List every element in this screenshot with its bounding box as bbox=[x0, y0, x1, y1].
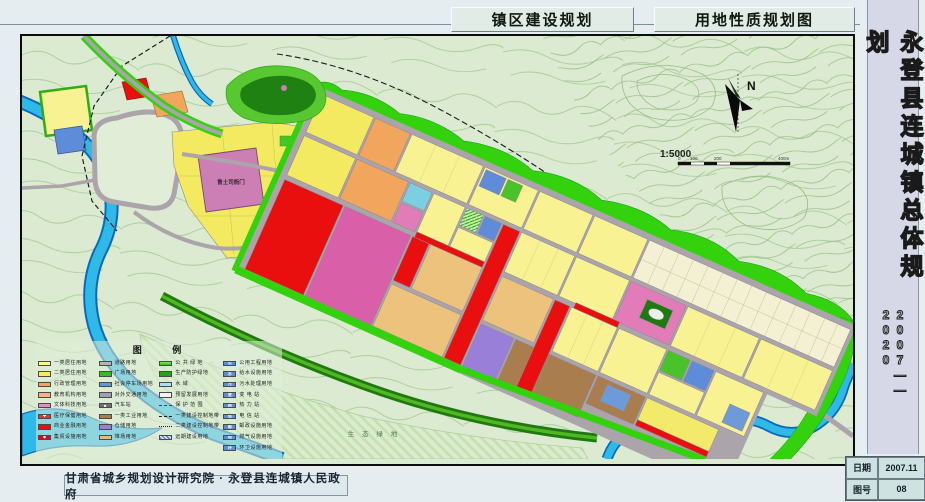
legend-item: 变变 电 站 bbox=[223, 390, 280, 401]
legend-label: 教育机构用地 bbox=[54, 393, 87, 398]
legend-item: 热热 力 站 bbox=[223, 400, 280, 411]
legend-item: 一类建设控制地带 bbox=[159, 411, 219, 422]
date-label: 日期 bbox=[846, 457, 878, 479]
legend-label: 文体科技用地 bbox=[54, 403, 87, 408]
legend-item: 保 护 范 围 bbox=[159, 400, 219, 411]
legend-item: 远期建设用地 bbox=[159, 432, 219, 443]
legend-item: 环环卫设施用地 bbox=[223, 443, 280, 454]
legend-label: 二类居住用地 bbox=[54, 371, 87, 376]
legend-label: 燃气设施用地 bbox=[239, 435, 272, 440]
legend-item: ✚医疗保健用地 bbox=[38, 411, 95, 422]
legend-item: 邮邮政设施用地 bbox=[223, 422, 280, 433]
svg-text:100: 100 bbox=[690, 156, 698, 161]
legend-label: 公用工程用地 bbox=[239, 361, 272, 366]
legend-item: 二类居住用地 bbox=[38, 369, 95, 380]
title-block-table: 日期 2007.11 图号 08 bbox=[845, 456, 925, 501]
forest-hill bbox=[226, 66, 326, 124]
legend-swatch bbox=[159, 416, 172, 417]
legend-item: 对外交通用地 bbox=[99, 390, 156, 401]
legend-item: 道路用地 bbox=[99, 358, 156, 369]
legend-label: 道路用地 bbox=[115, 361, 137, 366]
legend-item: 仓储用地 bbox=[99, 422, 156, 433]
svg-text:400m: 400m bbox=[778, 156, 790, 161]
legend-item: 教育机构用地 bbox=[38, 390, 95, 401]
legend-label: 行政管理用地 bbox=[54, 382, 87, 387]
legend-swatch bbox=[99, 435, 112, 441]
sheet-number-value: 08 bbox=[878, 479, 925, 501]
legend-label: 电 信 站 bbox=[239, 414, 259, 419]
legend-label: 邮政设施用地 bbox=[239, 424, 272, 429]
legend-columns: 一类居住用地二类居住用地行政管理用地教育机构用地文体科技用地✚医疗保健用地商业金… bbox=[38, 358, 280, 453]
legend-swatch bbox=[38, 392, 51, 398]
legend-swatch bbox=[38, 403, 51, 409]
legend-label: 一类居住用地 bbox=[54, 361, 87, 366]
legend-label: 社会停车场用地 bbox=[115, 382, 154, 387]
legend-label: 污水处理用地 bbox=[239, 382, 272, 387]
legend-swatch: 信 bbox=[223, 414, 236, 420]
legend-swatch bbox=[99, 392, 112, 398]
legend-item: 水给水设施用地 bbox=[223, 369, 280, 380]
legend-item: 二类建设控制地带 bbox=[159, 422, 219, 433]
legend-item: 行政管理用地 bbox=[38, 379, 95, 390]
legend-item: 一类居住用地 bbox=[38, 358, 95, 369]
legend-item: 污污水处理用地 bbox=[223, 379, 280, 390]
legend-swatch: ✚ bbox=[38, 414, 51, 420]
legend-swatch bbox=[159, 405, 172, 406]
legend-swatch: 燃 bbox=[223, 435, 236, 441]
legend-item: 文体科技用地 bbox=[38, 400, 95, 411]
legend-label: 广场用地 bbox=[115, 371, 137, 376]
legend-label: 变 电 站 bbox=[239, 393, 259, 398]
legend-item: 广场用地 bbox=[99, 369, 156, 380]
legend-label: 对外交通用地 bbox=[115, 393, 148, 398]
legend-swatch bbox=[38, 361, 51, 367]
title-panel: 永登县连城镇总体规划 2007——2020 bbox=[867, 0, 919, 454]
legend-swatch bbox=[159, 361, 172, 367]
legend-label: 一类工业用地 bbox=[115, 414, 148, 419]
legend-swatch bbox=[99, 382, 112, 388]
legend-item: 信电 信 站 bbox=[223, 411, 280, 422]
historic-site-label: 鲁土司衙门 bbox=[217, 178, 245, 186]
map-area: 鲁土司衙门 生 态 绿 地 N 1:5000 0 100 200 400m 图 … bbox=[20, 34, 855, 466]
legend-label: 水 域 bbox=[175, 382, 188, 387]
legend-label: 医疗保健用地 bbox=[54, 414, 87, 419]
legend-swatch: 邮 bbox=[223, 424, 236, 430]
svg-text:1:5000: 1:5000 bbox=[660, 149, 692, 160]
legend-label: 仓储用地 bbox=[115, 424, 137, 429]
legend-item: ◆集贸设施用地 bbox=[38, 432, 95, 443]
plan-sheet: { "header": { "title_left": "镇区建设规划", "t… bbox=[0, 0, 925, 500]
title-sidebar: 永登县连城镇总体规划 2007——2020 bbox=[860, 0, 925, 500]
sheet-number-label: 图号 bbox=[846, 479, 878, 501]
legend-swatch: 污 bbox=[223, 382, 236, 388]
legend-swatch: 热 bbox=[223, 403, 236, 409]
legend-title: 图 例 bbox=[48, 343, 280, 356]
header-title-right: 用地性质规划图 bbox=[654, 7, 855, 32]
legend-item: 商业金融用地 bbox=[38, 422, 95, 433]
legend-swatch bbox=[159, 371, 172, 377]
legend-item: 堆场用地 bbox=[99, 432, 156, 443]
legend-label: 二类建设控制地带 bbox=[175, 424, 219, 429]
header-title-left: 镇区建设规划 bbox=[451, 7, 634, 32]
legend-label: 堆场用地 bbox=[115, 435, 137, 440]
eco-green-label: 生 态 绿 地 bbox=[348, 429, 400, 438]
legend-swatch bbox=[38, 382, 51, 388]
legend-item: 一类工业用地 bbox=[99, 411, 156, 422]
legend-swatch: 公 bbox=[223, 361, 236, 367]
legend-label: 集贸设施用地 bbox=[54, 435, 87, 440]
legend-label: 给水设施用地 bbox=[239, 371, 272, 376]
legend-swatch bbox=[38, 424, 51, 430]
legend-swatch: ◆ bbox=[38, 435, 51, 441]
legend-label: 保 护 范 围 bbox=[175, 403, 203, 408]
legend-swatch bbox=[99, 371, 112, 377]
svg-text:200: 200 bbox=[714, 156, 722, 161]
legend-item: 公公用工程用地 bbox=[223, 358, 280, 369]
legend-item: 公 共 绿 地 bbox=[159, 358, 219, 369]
legend-item: 燃燃气设施用地 bbox=[223, 432, 280, 443]
legend-item: ■汽车站 bbox=[99, 400, 156, 411]
legend-item: 社会停车场用地 bbox=[99, 379, 156, 390]
legend-swatch bbox=[159, 426, 172, 427]
legend-label: 汽车站 bbox=[115, 403, 132, 408]
legend-swatch bbox=[99, 424, 112, 430]
legend-swatch bbox=[99, 414, 112, 420]
svg-text:N: N bbox=[747, 79, 756, 93]
date-value: 2007.11 bbox=[878, 457, 925, 479]
legend-label: 环卫设施用地 bbox=[239, 446, 272, 451]
sheet-title: 永登县连城镇总体规划 bbox=[859, 30, 925, 302]
legend-item: 生产防护绿地 bbox=[159, 369, 219, 380]
credit-box: 甘肃省城乡规划设计研究院 · 永登县连城镇人民政府 bbox=[64, 475, 348, 496]
legend-item: 预留发展用地 bbox=[159, 390, 219, 401]
plan-period: 2007——2020 bbox=[879, 308, 907, 454]
legend-swatch: 变 bbox=[223, 392, 236, 398]
legend-item: 水 域 bbox=[159, 379, 219, 390]
legend-swatch bbox=[99, 361, 112, 367]
legend-swatch: 环 bbox=[223, 445, 236, 451]
legend-label: 一类建设控制地带 bbox=[175, 414, 219, 419]
legend-label: 商业金融用地 bbox=[54, 424, 87, 429]
legend-label: 生产防护绿地 bbox=[175, 371, 208, 376]
legend-label: 远期建设用地 bbox=[175, 435, 208, 440]
legend-swatch bbox=[38, 371, 51, 377]
legend-swatch bbox=[159, 392, 172, 398]
legend-swatch bbox=[159, 435, 172, 441]
legend-swatch bbox=[159, 382, 172, 388]
legend-label: 预留发展用地 bbox=[175, 393, 208, 398]
legend-label: 公 共 绿 地 bbox=[175, 361, 203, 366]
legend: 图 例 一类居住用地二类居住用地行政管理用地教育机构用地文体科技用地✚医疗保健用… bbox=[36, 341, 282, 461]
legend-label: 热 力 站 bbox=[239, 403, 259, 408]
legend-swatch: 水 bbox=[223, 371, 236, 377]
legend-swatch: ■ bbox=[99, 403, 112, 409]
